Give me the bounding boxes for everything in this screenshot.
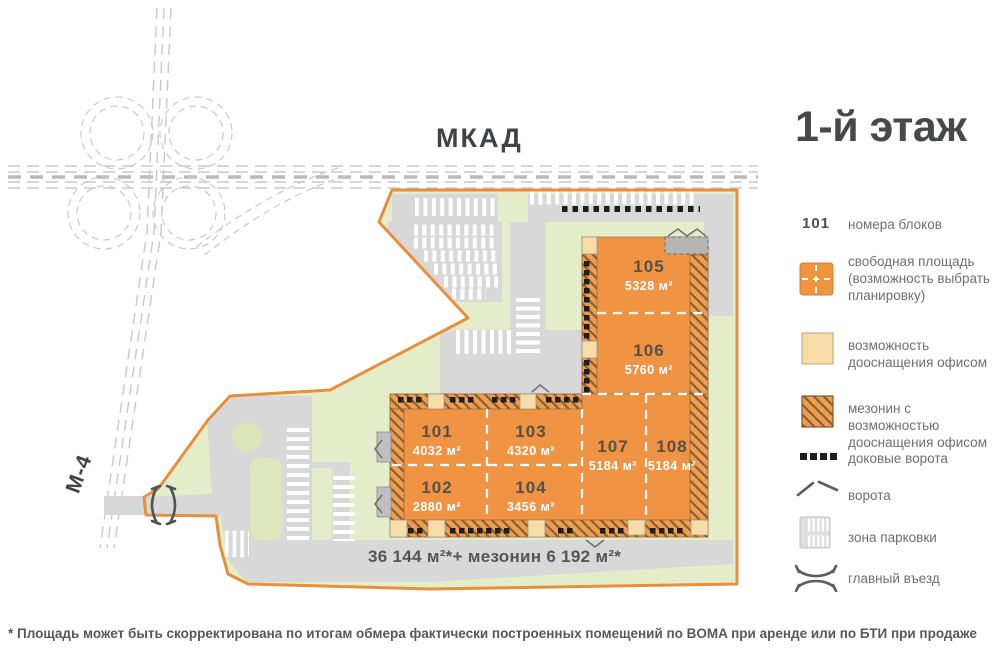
block-label-106: 106 5760 м²: [625, 342, 673, 377]
mezzanine-strip-east: [690, 255, 708, 394]
legend-block-number-sample: 101: [802, 215, 830, 232]
dock-gates-icon: [800, 452, 840, 462]
ramp-west-2: [377, 487, 391, 517]
block-label-101: 101 4032 м²: [413, 423, 461, 458]
parking-zone-icon: [799, 516, 833, 550]
block-label-104: 104 3456 м²: [507, 479, 555, 514]
legend-label-block-numbers: номера блоков: [848, 216, 1000, 233]
m4-road: [100, 8, 171, 548]
free-area-icon: [799, 262, 835, 298]
legend-label-office: возможность дооснащения офисом: [848, 337, 1000, 371]
office-provision-icon: [801, 332, 834, 365]
main-entrance-legend-icon: [795, 560, 841, 592]
legend-label-dock-gates: доковые ворота: [848, 450, 1000, 467]
ramp-west-1: [377, 432, 391, 462]
dock-apron: [665, 237, 708, 254]
block-label-107: 107 5184 м²: [589, 438, 637, 473]
gates-icon: [796, 479, 840, 499]
total-area-label: 36 144 м²*+ мезонин 6 192 м²*: [368, 547, 621, 567]
block-label-108: 108 5184 м²: [648, 438, 696, 473]
block-label-105: 105 5328 м²: [625, 258, 673, 293]
block-label-103: 103 4320 м²: [507, 423, 555, 458]
legend-label-main-entrance: главный въезд: [848, 570, 1000, 587]
legend-label-mezzanine: мезонин с возможностью дооснащения офисо…: [848, 400, 1000, 451]
legend-label-gates: ворота: [848, 487, 1000, 504]
legend-label-free-area: свободная площадь (возможность выбрать п…: [848, 253, 1000, 304]
footnote: * Площадь может быть скорректирована по …: [8, 626, 992, 641]
mezzanine-icon: [801, 395, 834, 428]
block-label-102: 102 2880 м²: [413, 479, 461, 514]
mkad-label: МКАД: [436, 123, 523, 154]
page-title: 1-й этаж: [795, 103, 966, 152]
legend-label-parking: зона парковки: [848, 529, 1000, 546]
